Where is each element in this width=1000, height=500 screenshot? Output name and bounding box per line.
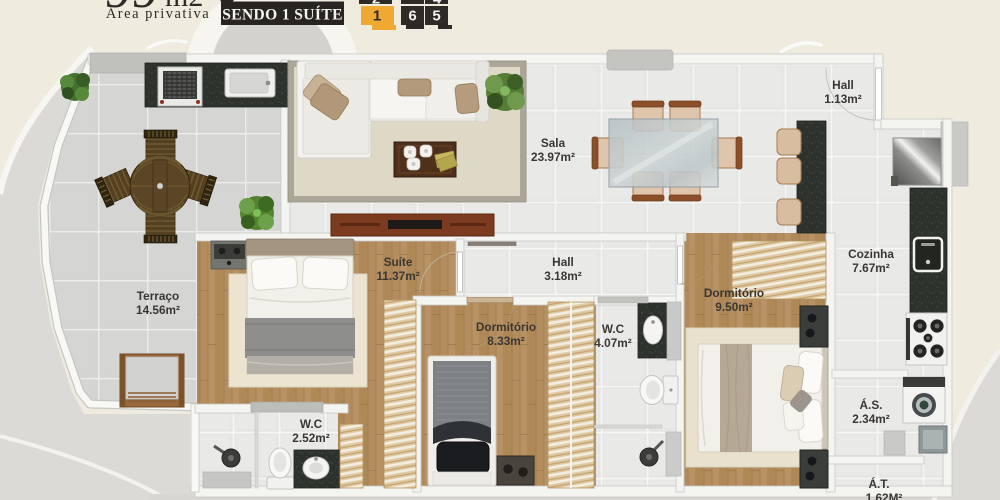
svg-text:Dormitório: Dormitório [476, 320, 536, 334]
svg-text:Dormitório: Dormitório [704, 286, 764, 300]
svg-text:SENDO 1 SUÍTE: SENDO 1 SUÍTE [222, 7, 343, 24]
svg-text:Hall: Hall [832, 78, 854, 92]
svg-text:6: 6 [408, 8, 416, 25]
svg-text:Cozinha: Cozinha [848, 247, 894, 261]
svg-text:Sala: Sala [541, 136, 566, 150]
svg-text:Hall: Hall [552, 255, 574, 269]
svg-text:9.50m²: 9.50m² [715, 300, 752, 314]
svg-text:Área privativa: Área privativa [106, 5, 210, 22]
svg-text:1: 1 [373, 8, 381, 25]
svg-text:1.62M²: 1.62M² [866, 491, 903, 500]
svg-text:W.C: W.C [602, 322, 625, 336]
svg-text:11.37m²: 11.37m² [376, 269, 419, 283]
svg-text:2.52m²: 2.52m² [292, 431, 329, 445]
svg-text:Á.T.: Á.T. [869, 477, 890, 491]
svg-text:2.34m²: 2.34m² [852, 412, 889, 426]
svg-text:8.33m²: 8.33m² [487, 334, 524, 348]
svg-text:3.18m²: 3.18m² [544, 269, 581, 283]
svg-text:W.C: W.C [300, 417, 323, 431]
svg-text:4.07m²: 4.07m² [594, 336, 631, 350]
svg-text:Á.S.: Á.S. [860, 398, 883, 412]
svg-text:5: 5 [432, 8, 440, 25]
svg-text:14.56m²: 14.56m² [136, 303, 180, 317]
svg-text:23.97m²: 23.97m² [531, 150, 575, 164]
svg-text:Suíte: Suíte [384, 255, 413, 269]
svg-text:7.67m²: 7.67m² [852, 261, 889, 275]
svg-text:1.13m²: 1.13m² [824, 92, 861, 106]
svg-text:Terraço: Terraço [137, 289, 179, 303]
